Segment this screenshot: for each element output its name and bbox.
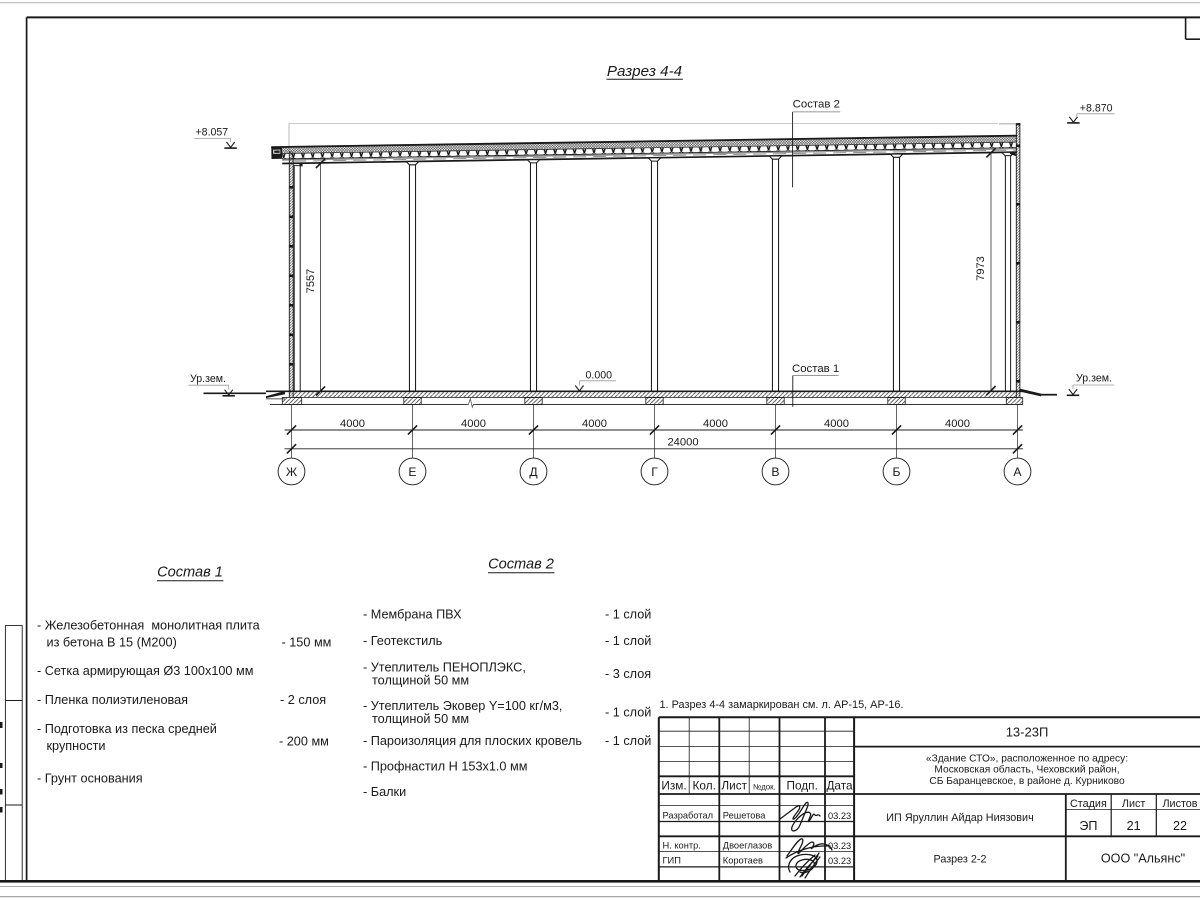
svg-text:- Утеплитель ПЕНОПЛЭКС,: - Утеплитель ПЕНОПЛЭКС, [363, 661, 526, 675]
svg-text:Е: Е [408, 465, 416, 479]
svg-text:7973: 7973 [975, 256, 987, 280]
svg-text:Состав 2: Состав 2 [488, 557, 554, 573]
svg-text:Кол.: Кол. [693, 779, 716, 793]
svg-text:Разрез 4-4: Разрез 4-4 [607, 63, 682, 80]
svg-text:Решетова: Решетова [723, 810, 766, 820]
svg-text:7557: 7557 [305, 269, 317, 293]
svg-text:1. Разрез 4-4 замаркирован см.: 1. Разрез 4-4 замаркирован см. л. АР-15,… [660, 699, 904, 711]
svg-text:- 1 слой: - 1 слой [605, 734, 651, 748]
svg-text:Б: Б [893, 465, 901, 479]
svg-text:4000: 4000 [582, 418, 607, 430]
svg-text:Разработал: Разработал [663, 810, 714, 820]
svg-text:толщиной 50 мм: толщиной 50 мм [372, 712, 469, 726]
svg-text:Изм.: Изм. [661, 779, 686, 793]
svg-text:ИП Яруллин Айдар Ниязович: ИП Яруллин Айдар Ниязович [886, 812, 1033, 824]
svg-text:А: А [1013, 465, 1022, 479]
svg-text:СБ Баранцевское, в районе д. К: СБ Баранцевское, в районе д. Курниково [929, 776, 1125, 787]
svg-text:Д: Д [529, 465, 538, 479]
svg-text:- Пленка полиэтиленовая: - Пленка полиэтиленовая [37, 693, 188, 707]
svg-text:Двоеглазов: Двоеглазов [723, 841, 772, 851]
svg-text:- 1 слой: - 1 слой [605, 634, 651, 648]
svg-text:- Мембрана ПВХ: - Мембрана ПВХ [363, 608, 462, 622]
svg-text:Подп.: Подп. [787, 779, 818, 793]
svg-text:4000: 4000 [340, 418, 365, 430]
svg-text:Г: Г [651, 465, 658, 479]
svg-text:- Железобетонная монолитная п: - Железобетонная монолитная плита [37, 619, 261, 633]
svg-text:Дата: Дата [826, 779, 853, 793]
svg-text:Коротаев: Коротаев [723, 855, 763, 865]
svg-text:ГИП: ГИП [663, 855, 681, 865]
svg-text:«Здание СТО», расположенное по: «Здание СТО», расположенное по адресу: [926, 753, 1128, 764]
svg-text:Стадия: Стадия [1070, 798, 1107, 810]
svg-text:- Пароизоляция для плоских кро: - Пароизоляция для плоских кровель [363, 734, 582, 748]
svg-text:- 3 слоя: - 3 слоя [605, 667, 651, 681]
svg-text:0.000: 0.000 [586, 369, 613, 381]
svg-text:- 200 мм: - 200 мм [279, 735, 329, 749]
svg-text:Лист: Лист [1122, 798, 1146, 810]
svg-text:4000: 4000 [824, 418, 849, 430]
svg-text:21: 21 [1127, 819, 1141, 833]
svg-text:03.23: 03.23 [828, 811, 851, 821]
svg-text:- Утеплитель Эковер Y=100 кг/м: - Утеплитель Эковер Y=100 кг/м3, [363, 699, 562, 713]
svg-text:- Подготовка из песка средней: - Подготовка из песка средней [37, 722, 217, 736]
svg-text:Н. контр.: Н. контр. [663, 841, 701, 851]
svg-text:- 2 слоя: - 2 слоя [280, 693, 326, 707]
svg-text:24000: 24000 [667, 437, 698, 449]
svg-text:ООО "Альянс": ООО "Альянс" [1101, 852, 1185, 866]
svg-text:из бетона В 15 (М200): из бетона В 15 (М200) [47, 636, 177, 650]
svg-text:крупности: крупности [47, 739, 106, 753]
svg-text:- Сетка армирующая Ø3 100х100: - Сетка армирующая Ø3 100х100 мм [37, 664, 253, 678]
svg-text:Лист: Лист [721, 779, 747, 793]
svg-text:№док.: №док. [753, 782, 776, 791]
svg-text:- 1 слой: - 1 слой [605, 608, 651, 622]
svg-text:Ж: Ж [286, 465, 298, 479]
svg-text:4000: 4000 [461, 418, 486, 430]
svg-text:13-23П: 13-23П [1006, 724, 1049, 739]
svg-text:03.23: 03.23 [828, 856, 851, 866]
svg-text:Состав 1: Состав 1 [792, 363, 839, 375]
svg-text:Ур.зем.: Ур.зем. [190, 373, 226, 385]
svg-text:4000: 4000 [945, 418, 970, 430]
svg-text:- 150 мм: - 150 мм [282, 636, 332, 650]
svg-text:ЭП: ЭП [1079, 819, 1097, 833]
svg-text:Состав 2: Состав 2 [793, 98, 840, 110]
svg-text:Ур.зем.: Ур.зем. [1076, 373, 1112, 385]
svg-text:4000: 4000 [703, 418, 728, 430]
svg-text:22: 22 [1173, 819, 1187, 833]
svg-text:- Грунт основания: - Грунт основания [37, 772, 143, 786]
svg-text:- Балки: - Балки [363, 785, 406, 799]
svg-text:Листов: Листов [1162, 798, 1197, 810]
svg-text:- Профнастил Н 153х1.0 мм: - Профнастил Н 153х1.0 мм [363, 760, 527, 774]
svg-text:+8.870: +8.870 [1080, 102, 1113, 114]
svg-text:Разрез 2-2: Разрез 2-2 [933, 854, 986, 866]
svg-text:- Геотекстиль: - Геотекстиль [363, 634, 443, 648]
svg-text:Состав 1: Состав 1 [157, 565, 223, 581]
svg-text:толщиной 50 мм: толщиной 50 мм [372, 674, 469, 688]
svg-text:- 1 слой: - 1 слой [605, 706, 651, 720]
svg-text:+8.057: +8.057 [196, 126, 229, 138]
svg-text:В: В [771, 465, 779, 479]
svg-text:Московская область, Чеховский: Московская область, Чеховский район, [934, 764, 1119, 776]
